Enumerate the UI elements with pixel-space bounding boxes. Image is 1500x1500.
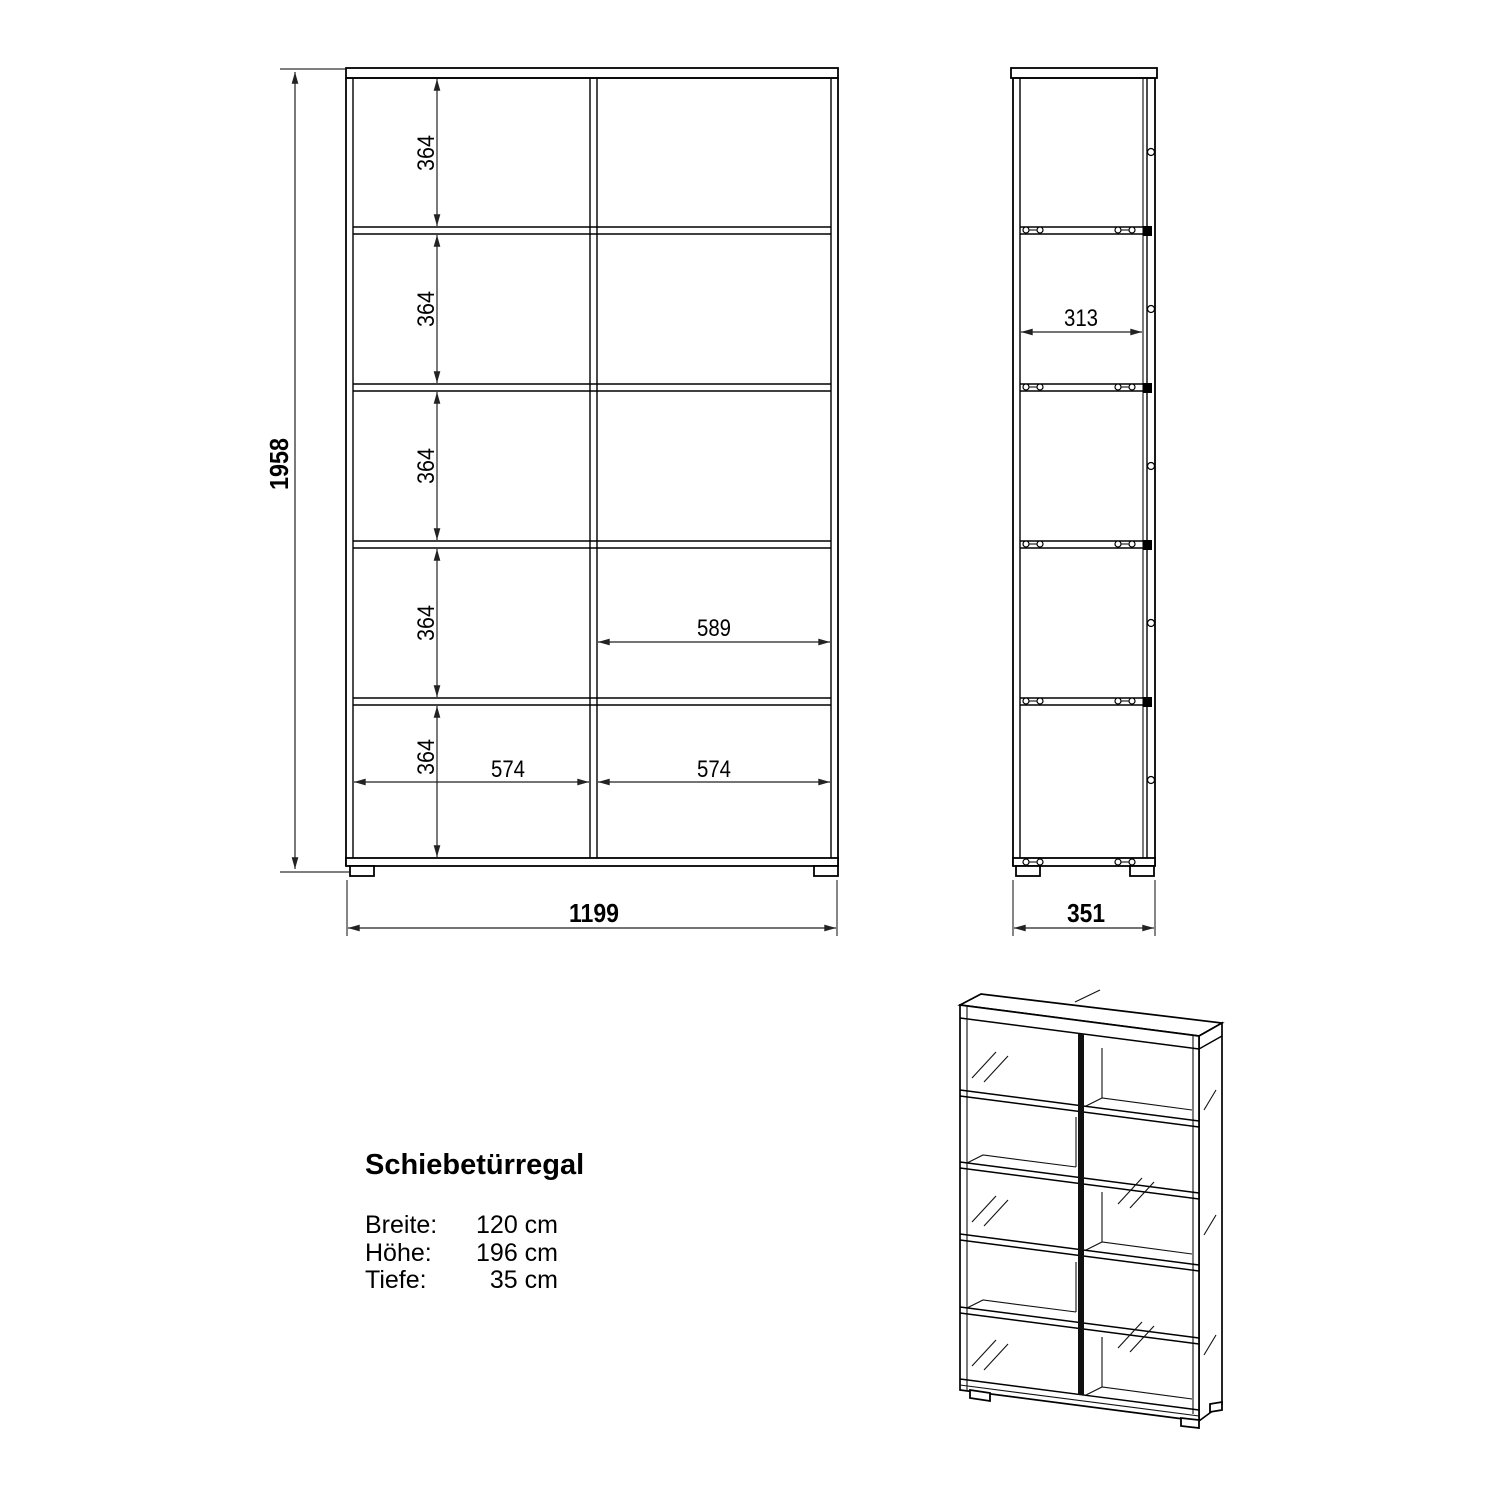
iso-cabinet (960, 990, 1222, 1428)
dim-shelf-height-5: 364 (413, 739, 440, 775)
front-bottom-panel (346, 858, 838, 866)
dim-overall-width-label: 1199 (569, 898, 619, 928)
spec-value-hoehe: 196 cm (476, 1239, 558, 1267)
technical-drawing-page: 1958 364 364 364 364 364 589 574 574 (0, 0, 1500, 1500)
spec-value-tiefe: 35 cm (490, 1266, 558, 1294)
spec-label-hoehe: Höhe: (365, 1239, 432, 1267)
side-back-foot (1130, 866, 1154, 876)
front-elevation-view: 1958 364 364 364 364 364 589 574 574 (264, 68, 838, 936)
side-dimensions: 313 351 (1013, 305, 1155, 936)
dim-door-width-label: 589 (697, 615, 731, 642)
dim-compartment-left-label: 574 (491, 756, 525, 783)
front-center-divider (590, 78, 597, 858)
side-front-foot (1016, 866, 1040, 876)
dim-shelf-height-1: 364 (413, 135, 440, 171)
dim-shelf-height-3: 364 (413, 448, 440, 484)
front-right-foot (814, 866, 838, 876)
iso-side-face (1199, 1023, 1222, 1421)
front-left-foot (350, 866, 374, 876)
screw-pair (1023, 384, 1135, 390)
dim-shelf-height-2: 364 (413, 291, 440, 327)
front-dimensions: 1958 364 364 364 364 364 589 574 574 (264, 69, 837, 936)
side-feet (1016, 866, 1154, 876)
dim-overall-depth-label: 351 (1067, 898, 1105, 928)
screw-pair (1023, 227, 1135, 233)
side-shelves (1020, 226, 1152, 707)
screw-pair (1023, 541, 1135, 547)
technical-drawing-canvas: 1958 364 364 364 364 364 589 574 574 (0, 0, 1500, 1500)
dim-compartment-right-label: 574 (697, 756, 731, 783)
isometric-view (960, 990, 1222, 1428)
screw-pair (1023, 698, 1135, 704)
spec-label-tiefe: Tiefe: (365, 1266, 427, 1294)
side-elevation-view: 313 351 (1011, 68, 1157, 936)
dim-overall-height-label: 1958 (264, 438, 294, 490)
side-cabinet-body (1011, 68, 1157, 866)
spec-label-breite: Breite: (365, 1211, 437, 1239)
side-top-panel (1011, 68, 1157, 78)
front-feet (350, 866, 838, 876)
spec-value-breite: 120 cm (476, 1211, 558, 1239)
dim-shelf-height-4: 364 (413, 605, 440, 641)
product-title: Schiebetürregal (365, 1149, 584, 1181)
dim-inner-depth-label: 313 (1064, 305, 1098, 332)
front-top-panel (346, 68, 838, 78)
side-door-track-holes (1148, 149, 1155, 784)
title-block: Schiebetürregal Breite: 120 cm Höhe: 196… (365, 1149, 584, 1294)
